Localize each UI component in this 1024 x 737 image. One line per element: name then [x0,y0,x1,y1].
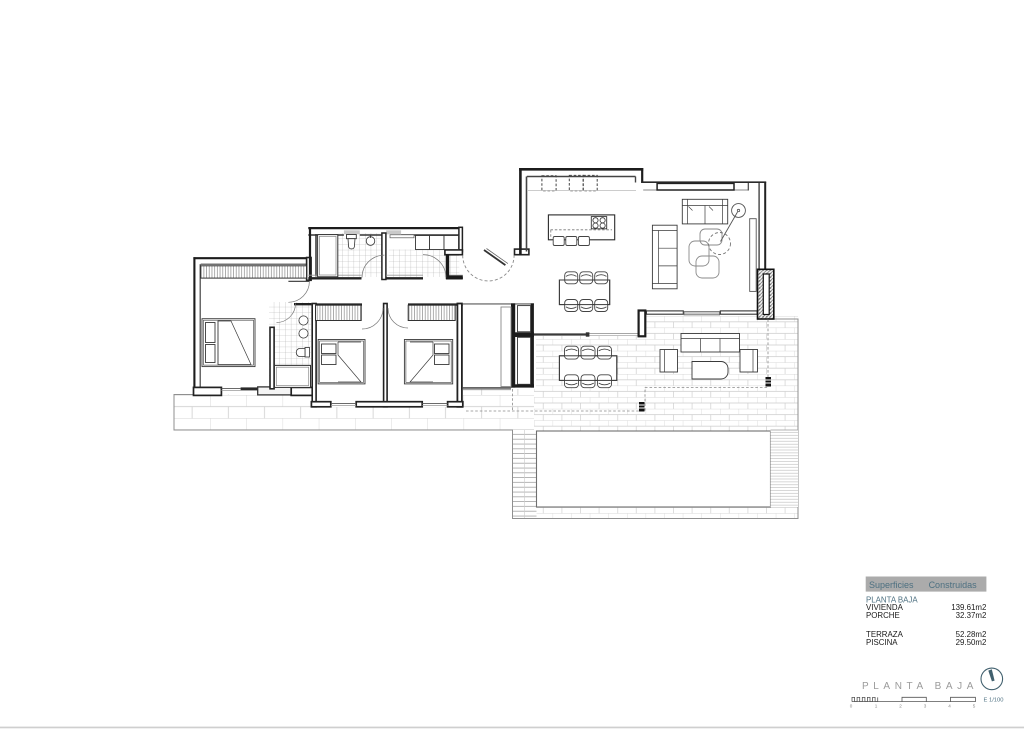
svg-text:Construidas: Construidas [929,580,978,590]
svg-text:4: 4 [948,704,951,709]
svg-text:32.37m2: 32.37m2 [956,611,987,620]
svg-text:29.50m2: 29.50m2 [956,638,987,647]
svg-text:PLANTA BAJA: PLANTA BAJA [862,681,978,692]
svg-text:PISCINA: PISCINA [866,638,898,647]
svg-text:0: 0 [850,704,853,709]
svg-text:3: 3 [924,704,927,709]
svg-text:1: 1 [875,704,878,709]
svg-text:PORCHE: PORCHE [866,611,900,620]
svg-text:Superficies: Superficies [869,580,914,590]
svg-text:5: 5 [973,704,976,709]
svg-text:2: 2 [899,704,902,709]
svg-text:E 1/100: E 1/100 [984,697,1004,703]
